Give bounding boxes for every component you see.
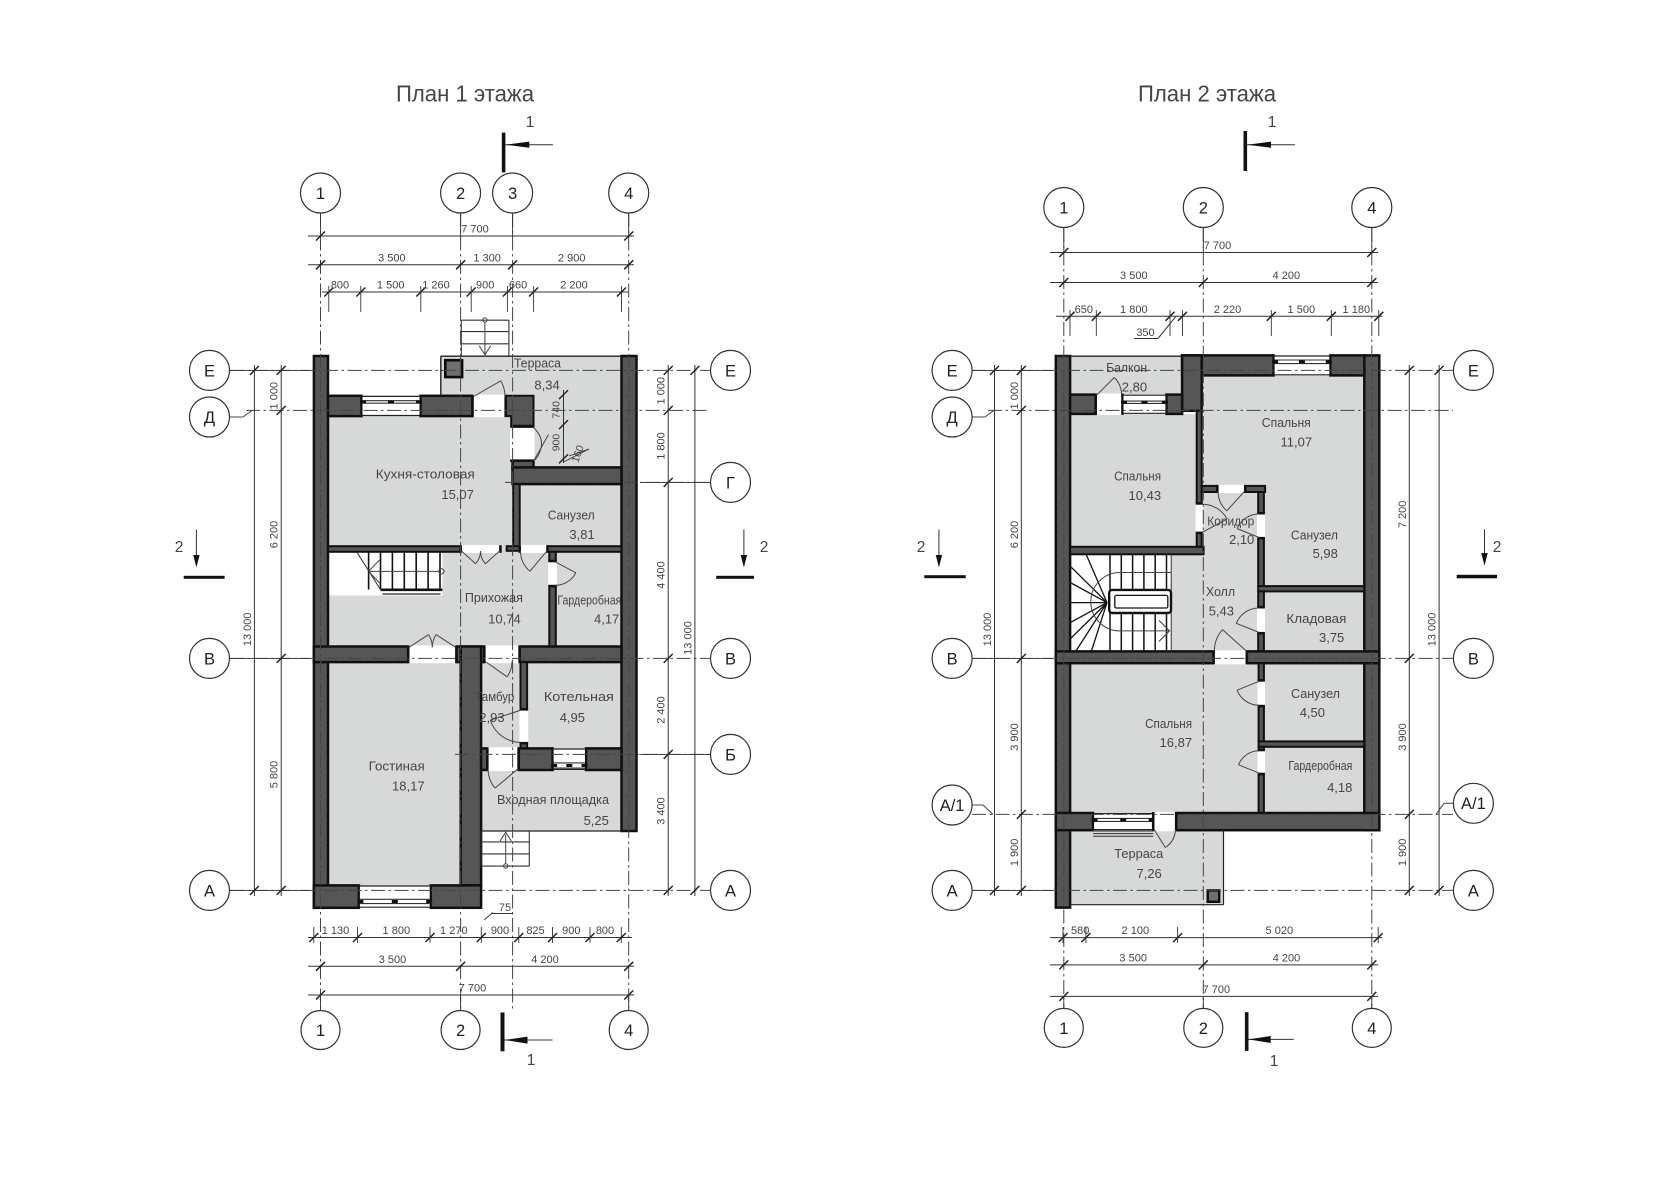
svg-text:900: 900 — [551, 434, 563, 452]
svg-text:Е: Е — [725, 362, 736, 380]
svg-text:650: 650 — [1075, 304, 1093, 316]
svg-text:1: 1 — [1268, 114, 1277, 131]
svg-text:Терраса: Терраса — [514, 356, 562, 371]
svg-text:Б: Б — [725, 746, 736, 764]
svg-text:А/1: А/1 — [1461, 795, 1486, 813]
svg-text:2 100: 2 100 — [1122, 925, 1150, 937]
svg-text:1: 1 — [1059, 1020, 1068, 1038]
svg-text:1 270: 1 270 — [440, 925, 468, 937]
svg-text:350: 350 — [1136, 327, 1154, 339]
svg-text:13 000: 13 000 — [982, 613, 994, 647]
svg-text:5,25: 5,25 — [584, 813, 609, 828]
svg-text:11,07: 11,07 — [1281, 434, 1313, 449]
svg-text:7 700: 7 700 — [461, 224, 489, 236]
svg-text:Спальня: Спальня — [1114, 469, 1161, 484]
svg-text:3 500: 3 500 — [1120, 270, 1148, 282]
svg-text:Д: Д — [947, 409, 958, 427]
svg-text:Спальня: Спальня — [1145, 716, 1192, 731]
svg-text:4,18: 4,18 — [1327, 780, 1352, 795]
svg-text:Гардеробная: Гардеробная — [1288, 758, 1352, 773]
svg-text:2,80: 2,80 — [1122, 380, 1147, 395]
svg-text:1: 1 — [1270, 1053, 1279, 1070]
svg-text:2: 2 — [175, 539, 184, 556]
svg-text:Е: Е — [1468, 362, 1479, 380]
svg-text:Г: Г — [726, 474, 735, 492]
svg-text:3 500: 3 500 — [378, 252, 406, 264]
svg-text:10,43: 10,43 — [1129, 488, 1162, 503]
svg-text:3: 3 — [508, 185, 517, 203]
svg-text:2: 2 — [1199, 1020, 1208, 1038]
svg-text:В: В — [204, 650, 215, 668]
svg-text:2: 2 — [456, 1022, 465, 1040]
svg-text:7 700: 7 700 — [459, 983, 487, 995]
svg-text:3 500: 3 500 — [379, 954, 407, 966]
svg-text:5 020: 5 020 — [1266, 925, 1294, 937]
svg-text:10,74: 10,74 — [488, 612, 521, 627]
svg-text:2: 2 — [1493, 539, 1502, 556]
svg-text:2,93: 2,93 — [479, 710, 504, 725]
svg-text:Е: Е — [204, 362, 215, 380]
svg-text:2 400: 2 400 — [656, 696, 668, 724]
svg-text:16,87: 16,87 — [1160, 735, 1193, 750]
svg-text:4: 4 — [1367, 199, 1376, 217]
svg-text:6 200: 6 200 — [1009, 521, 1021, 549]
svg-text:План 1 этажа: План 1 этажа — [396, 81, 534, 107]
svg-text:1: 1 — [526, 114, 535, 131]
svg-text:13 000: 13 000 — [242, 612, 254, 646]
svg-text:Санузел: Санузел — [1291, 686, 1340, 701]
svg-text:900: 900 — [562, 925, 580, 937]
svg-text:5 800: 5 800 — [269, 761, 281, 789]
svg-text:2 220: 2 220 — [1214, 304, 1242, 316]
svg-text:Д: Д — [204, 409, 215, 427]
svg-text:Санузел: Санузел — [1291, 528, 1338, 543]
svg-text:2 200: 2 200 — [560, 280, 588, 292]
svg-text:1 300: 1 300 — [473, 252, 501, 264]
svg-text:А: А — [725, 882, 736, 900]
svg-text:13 000: 13 000 — [682, 621, 694, 655]
svg-text:1 500: 1 500 — [377, 280, 405, 292]
svg-text:1 500: 1 500 — [1288, 304, 1316, 316]
svg-text:2,10: 2,10 — [1229, 532, 1254, 547]
svg-text:В: В — [947, 650, 958, 668]
svg-text:1 000: 1 000 — [269, 382, 281, 410]
svg-text:Кухня-столовая: Кухня-столовая — [376, 466, 475, 481]
svg-text:900: 900 — [491, 925, 509, 937]
svg-text:900: 900 — [476, 280, 494, 292]
svg-text:1 000: 1 000 — [656, 377, 668, 405]
svg-text:1 130: 1 130 — [322, 925, 350, 937]
svg-text:4: 4 — [1367, 1020, 1376, 1038]
svg-text:5,98: 5,98 — [1313, 546, 1338, 561]
svg-text:Кладовая: Кладовая — [1286, 611, 1346, 626]
svg-text:4 200: 4 200 — [1273, 270, 1301, 282]
svg-text:А: А — [947, 882, 958, 900]
svg-text:1 800: 1 800 — [383, 925, 411, 937]
svg-text:7 700: 7 700 — [1203, 984, 1231, 996]
svg-text:660: 660 — [509, 280, 527, 292]
svg-text:1 900: 1 900 — [1397, 839, 1409, 867]
svg-text:Тамбур: Тамбур — [475, 689, 514, 704]
svg-text:825: 825 — [526, 925, 544, 937]
svg-text:8,34: 8,34 — [534, 377, 559, 392]
svg-text:1: 1 — [316, 185, 325, 203]
svg-text:4 200: 4 200 — [531, 954, 559, 966]
svg-text:Холл: Холл — [1206, 584, 1235, 599]
svg-text:7 700: 7 700 — [1204, 240, 1232, 252]
svg-text:13 000: 13 000 — [1427, 613, 1439, 647]
svg-text:3 400: 3 400 — [656, 797, 668, 825]
svg-text:75: 75 — [499, 902, 511, 914]
svg-text:4,50: 4,50 — [1300, 705, 1325, 720]
svg-text:А: А — [204, 882, 215, 900]
svg-text:2: 2 — [1199, 199, 1208, 217]
svg-text:Гостиная: Гостиная — [369, 758, 425, 773]
svg-text:7,26: 7,26 — [1136, 866, 1161, 881]
svg-text:1: 1 — [316, 1022, 325, 1040]
svg-text:4: 4 — [624, 1022, 633, 1040]
svg-text:5,43: 5,43 — [1209, 604, 1234, 619]
svg-text:В: В — [1468, 650, 1479, 668]
svg-text:740: 740 — [551, 401, 563, 419]
svg-text:800: 800 — [596, 925, 614, 937]
svg-text:В: В — [725, 650, 736, 668]
svg-text:1: 1 — [1059, 199, 1068, 217]
svg-text:15,07: 15,07 — [441, 487, 474, 502]
svg-text:1: 1 — [527, 1052, 536, 1069]
svg-text:4,17: 4,17 — [594, 612, 619, 627]
svg-text:580: 580 — [1071, 925, 1089, 937]
svg-text:2 900: 2 900 — [558, 252, 586, 264]
svg-text:3,75: 3,75 — [1319, 630, 1344, 645]
svg-text:Балкон: Балкон — [1106, 360, 1147, 375]
svg-text:800: 800 — [331, 280, 349, 292]
svg-text:3 900: 3 900 — [1397, 723, 1409, 751]
svg-text:Коридор: Коридор — [1207, 514, 1254, 529]
svg-text:1 000: 1 000 — [1009, 382, 1021, 410]
svg-text:Спальня: Спальня — [1262, 415, 1311, 430]
svg-text:1 800: 1 800 — [656, 432, 668, 460]
svg-text:4: 4 — [624, 185, 633, 203]
svg-text:Е: Е — [947, 362, 958, 380]
svg-text:2: 2 — [917, 539, 926, 556]
svg-text:7 200: 7 200 — [1397, 501, 1409, 529]
svg-text:Котельная: Котельная — [544, 689, 614, 704]
svg-text:3,81: 3,81 — [569, 527, 594, 542]
svg-text:2: 2 — [760, 539, 769, 556]
svg-text:А/1: А/1 — [940, 797, 965, 815]
svg-text:1 800: 1 800 — [1120, 304, 1148, 316]
svg-text:2: 2 — [456, 185, 465, 203]
svg-text:4,95: 4,95 — [560, 710, 585, 725]
svg-text:А: А — [1468, 882, 1479, 900]
svg-text:Санузел: Санузел — [548, 507, 595, 522]
svg-text:4 200: 4 200 — [1273, 952, 1301, 964]
svg-text:6 200: 6 200 — [269, 521, 281, 549]
svg-text:1 260: 1 260 — [422, 280, 450, 292]
svg-text:Терраса: Терраса — [1114, 846, 1164, 861]
svg-text:4 400: 4 400 — [656, 561, 668, 589]
svg-text:Прихожая: Прихожая — [465, 590, 523, 605]
svg-text:1 900: 1 900 — [1009, 839, 1021, 867]
svg-text:1 180: 1 180 — [1343, 304, 1371, 316]
svg-text:Гардеробная: Гардеробная — [557, 592, 621, 607]
svg-text:Входная площадка: Входная площадка — [497, 792, 610, 807]
svg-text:План 2 этажа: План 2 этажа — [1138, 81, 1276, 107]
svg-text:18,17: 18,17 — [392, 778, 425, 793]
svg-text:3 500: 3 500 — [1119, 952, 1147, 964]
svg-text:3 900: 3 900 — [1009, 723, 1021, 751]
